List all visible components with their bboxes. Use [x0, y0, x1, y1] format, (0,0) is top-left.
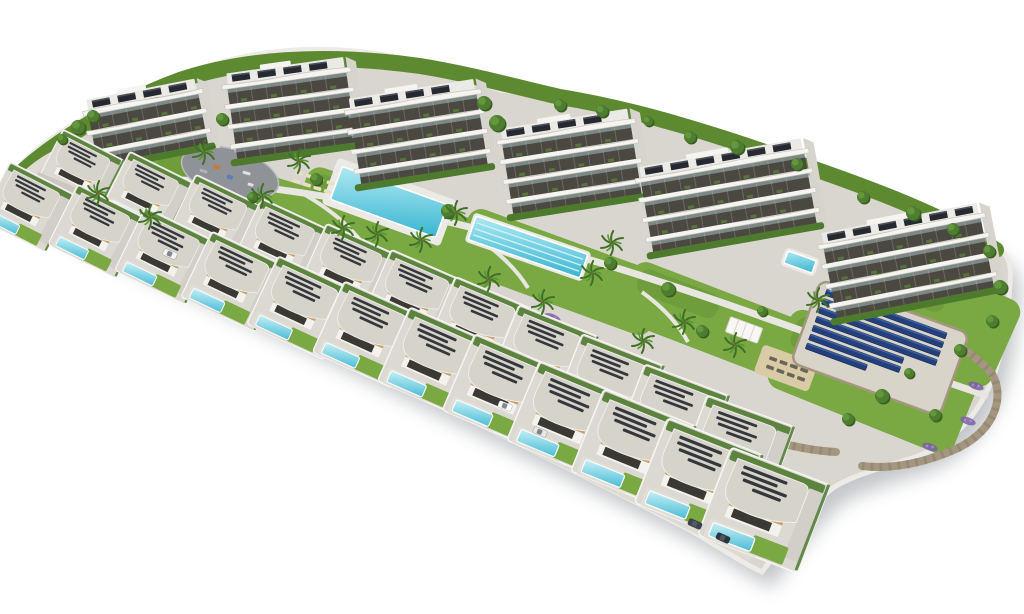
site-plan-svg [0, 0, 1024, 614]
aerial-render-image [0, 0, 1024, 614]
